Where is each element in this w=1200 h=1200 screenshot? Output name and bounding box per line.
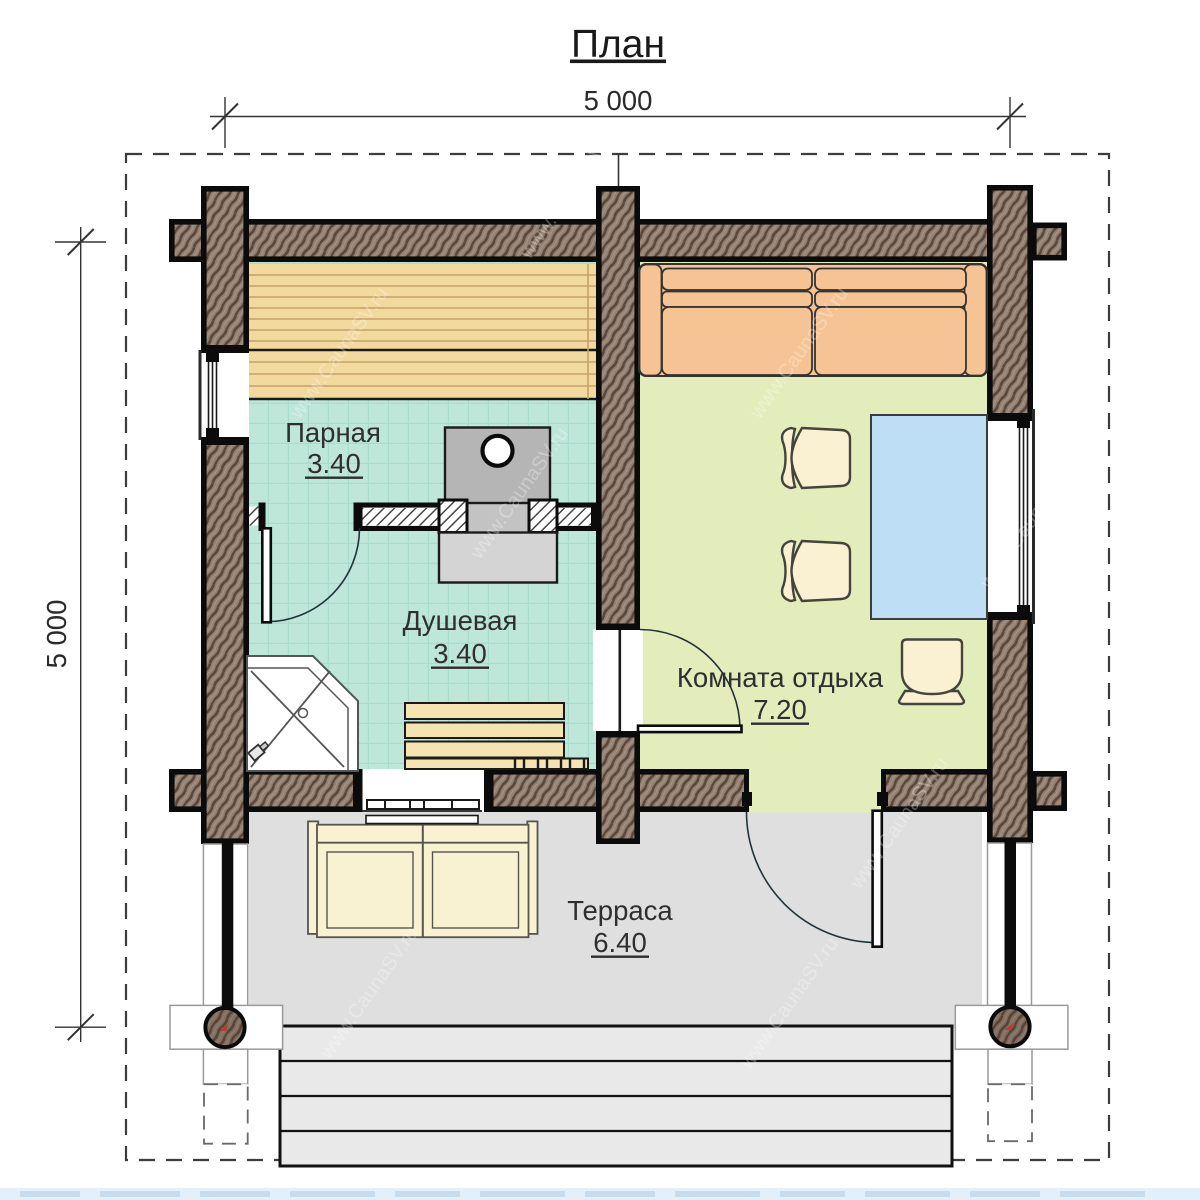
svg-text:5 000: 5 000 xyxy=(41,600,72,669)
svg-text:Комната отдыха: Комната отдыха xyxy=(677,662,884,693)
svg-text:3.40: 3.40 xyxy=(433,638,487,669)
svg-text:Душевая: Душевая xyxy=(403,605,518,636)
svg-text:5 000: 5 000 xyxy=(584,85,653,116)
svg-text:Парная: Парная xyxy=(285,417,381,448)
svg-text:Терраса: Терраса xyxy=(567,895,673,926)
svg-text:3.40: 3.40 xyxy=(307,448,361,479)
svg-text:6.40: 6.40 xyxy=(593,927,647,958)
svg-text:7.20: 7.20 xyxy=(753,694,807,725)
